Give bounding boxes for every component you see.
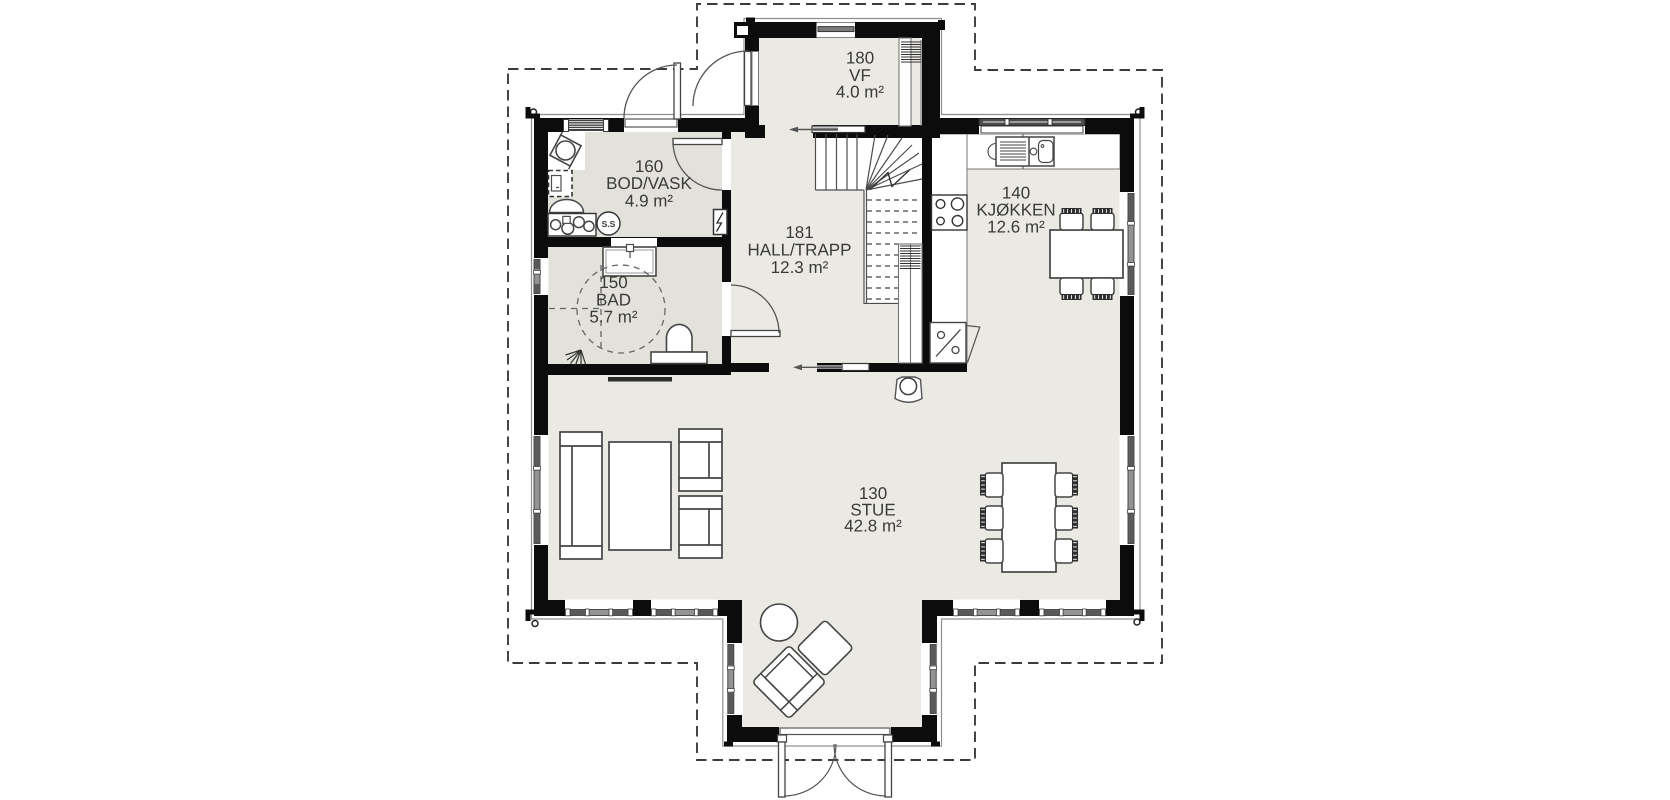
svg-text:4.9 m²: 4.9 m²: [625, 192, 674, 211]
svg-text:180: 180: [846, 49, 874, 68]
svg-text:181: 181: [785, 223, 813, 242]
svg-text:12.3 m²: 12.3 m²: [771, 258, 829, 277]
svg-text:4.0 m²: 4.0 m²: [836, 83, 885, 102]
svg-text:12.6 m²: 12.6 m²: [987, 218, 1045, 237]
svg-text:BOD/VASK: BOD/VASK: [606, 174, 692, 193]
svg-text:150: 150: [599, 273, 627, 292]
svg-text:S.S: S.S: [602, 219, 616, 229]
svg-text:42.8 m²: 42.8 m²: [844, 517, 902, 536]
svg-text:HALL/TRAPP: HALL/TRAPP: [748, 241, 852, 260]
svg-text:5.7 m²: 5.7 m²: [589, 308, 638, 327]
